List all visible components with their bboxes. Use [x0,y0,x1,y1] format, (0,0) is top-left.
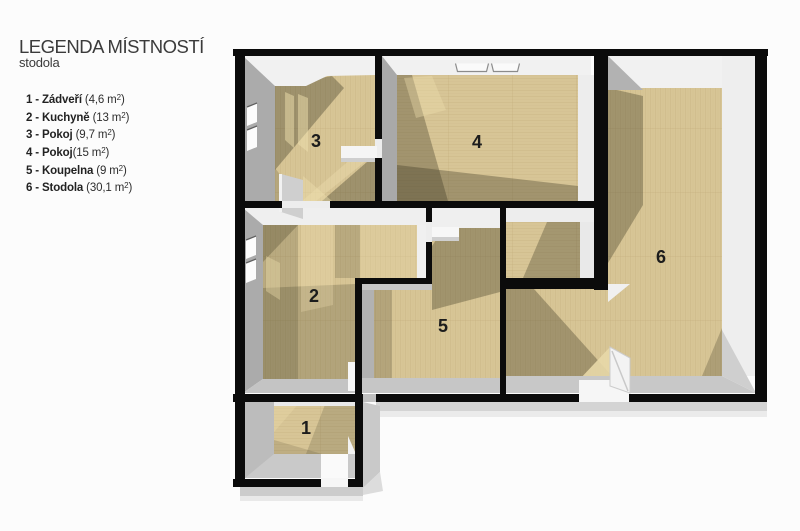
svg-text:1: 1 [301,418,311,438]
svg-text:3: 3 [311,131,321,151]
svg-text:6: 6 [656,247,666,267]
svg-text:4: 4 [472,132,482,152]
svg-text:2: 2 [309,286,319,306]
svg-text:5: 5 [438,316,448,336]
